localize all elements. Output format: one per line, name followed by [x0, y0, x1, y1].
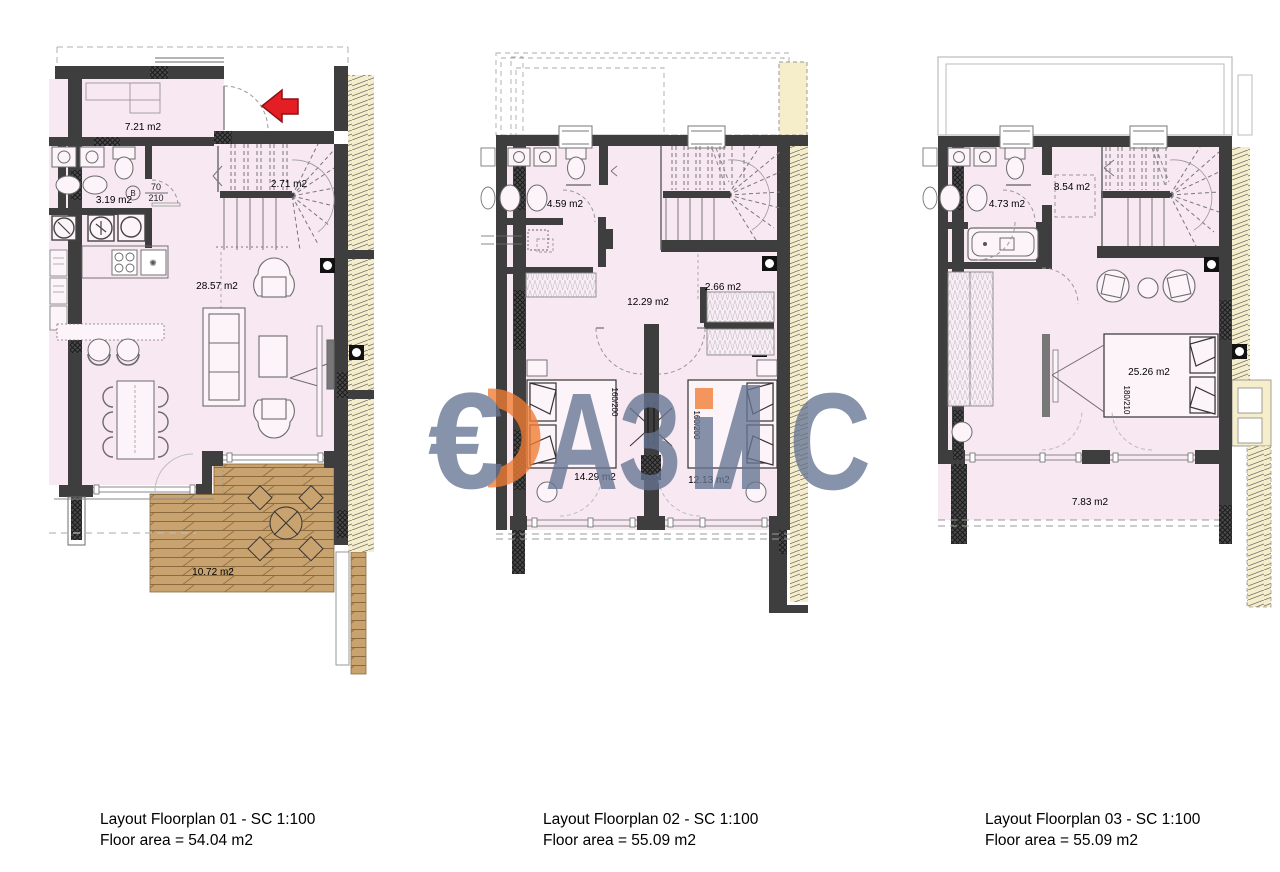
svg-text:210: 210 [148, 193, 163, 203]
svg-text:Layout Floorplan 02 - SC 1:100: Layout Floorplan 02 - SC 1:100 [543, 811, 759, 828]
svg-text:3.19 m2: 3.19 m2 [96, 195, 133, 206]
svg-text:4.73 m2: 4.73 m2 [989, 199, 1026, 210]
svg-text:2.66 m2: 2.66 m2 [705, 282, 742, 293]
svg-text:✺: ✺ [149, 258, 157, 268]
svg-text:С: С [789, 365, 871, 519]
svg-text:7.21 m2: 7.21 m2 [125, 122, 162, 133]
svg-text:Floor area = 55.09 m2: Floor area = 55.09 m2 [543, 832, 696, 849]
svg-text:Layout Floorplan 01 - SC 1:100: Layout Floorplan 01 - SC 1:100 [100, 811, 316, 828]
svg-text:АЗ: АЗ [545, 365, 682, 519]
svg-text:Floor area = 54.04 m2: Floor area = 54.04 m2 [100, 832, 253, 849]
svg-text:70: 70 [151, 182, 161, 192]
svg-text:25.26 m2: 25.26 m2 [1128, 367, 1170, 378]
svg-text:2.71 m2: 2.71 m2 [271, 179, 308, 190]
svg-text:Floor area = 55.09 m2: Floor area = 55.09 m2 [985, 832, 1138, 849]
svg-text:4.59 m2: 4.59 m2 [547, 199, 584, 210]
svg-text:Layout Floorplan 03 - SC 1:100: Layout Floorplan 03 - SC 1:100 [985, 811, 1201, 828]
svg-text:180/210: 180/210 [1122, 386, 1131, 415]
svg-text:10.72 m2: 10.72 m2 [192, 567, 234, 578]
svg-text:12.29 m2: 12.29 m2 [627, 297, 669, 308]
svg-text:7.83 m2: 7.83 m2 [1072, 497, 1109, 508]
svg-text:28.57 m2: 28.57 m2 [196, 281, 238, 292]
svg-text:€: € [428, 365, 504, 518]
svg-text:8.54 m2: 8.54 m2 [1054, 182, 1091, 193]
